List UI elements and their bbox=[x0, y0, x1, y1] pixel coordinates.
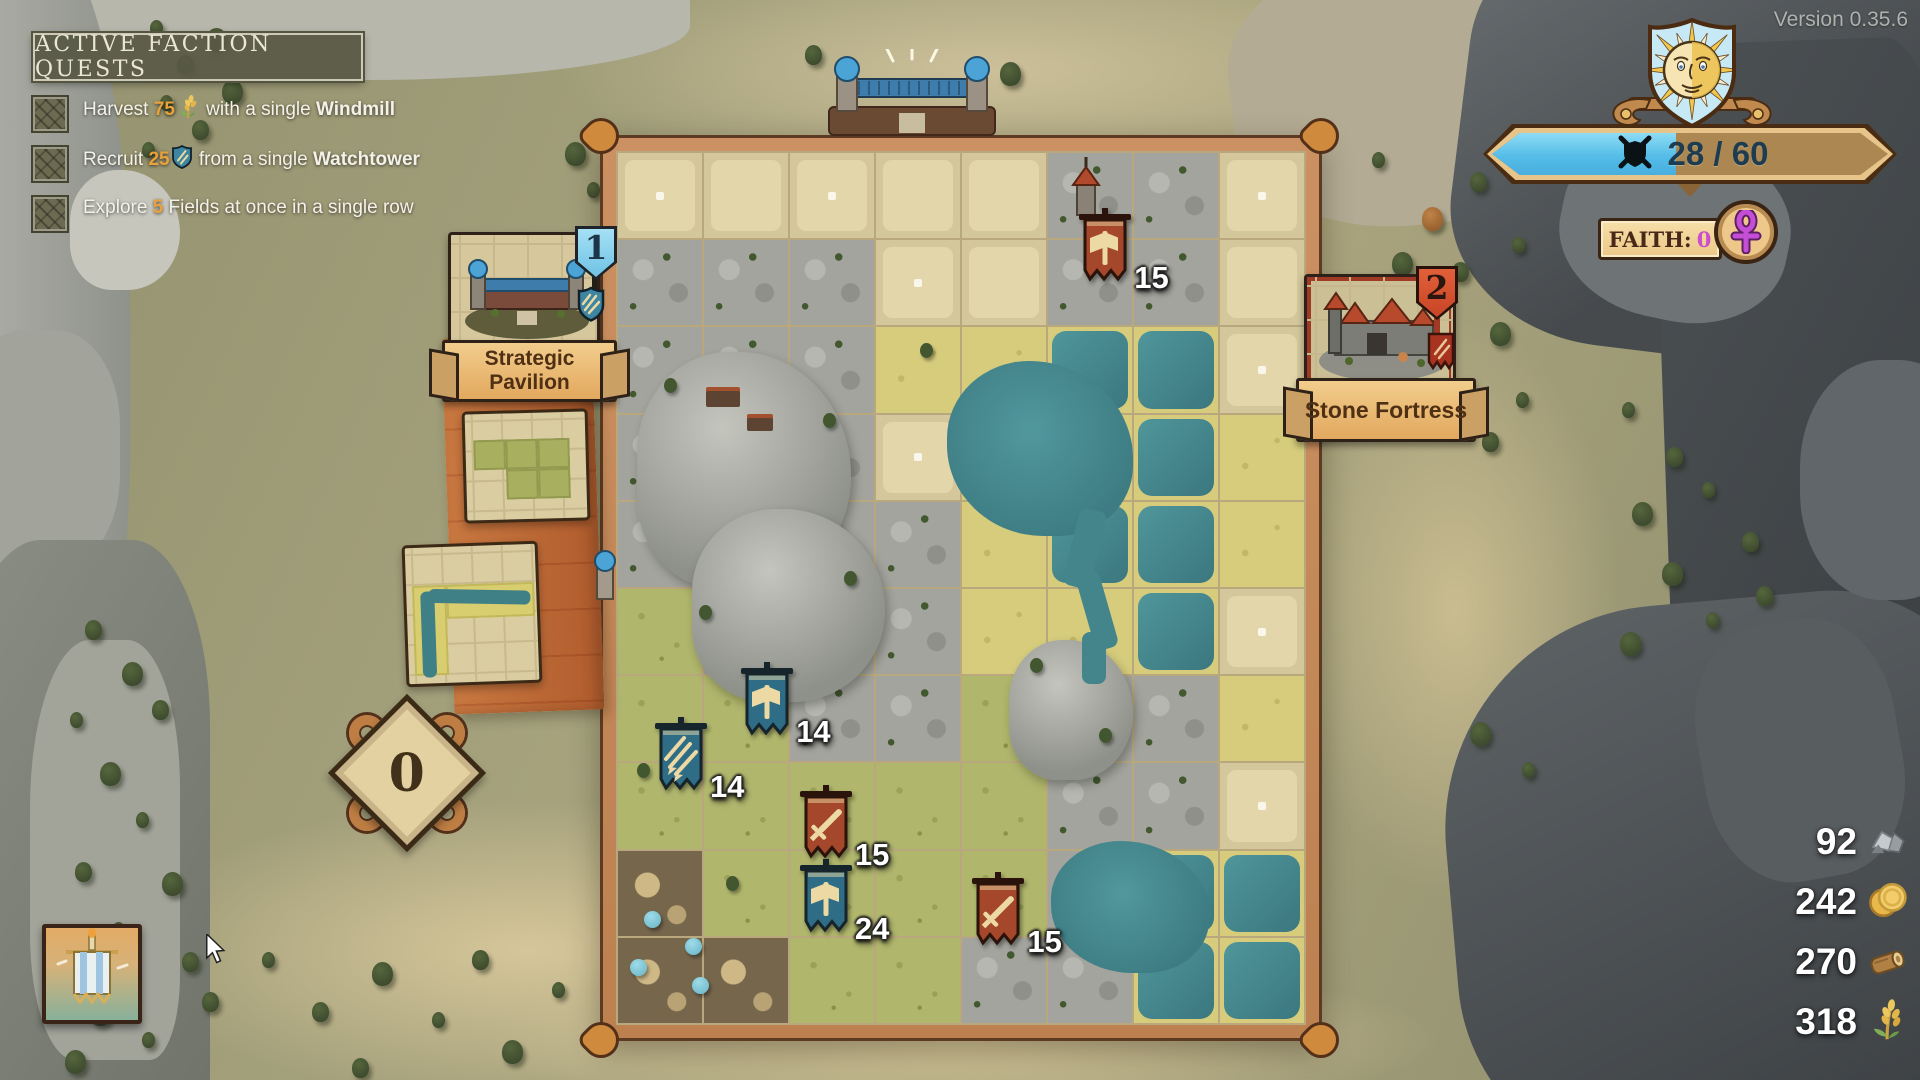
faith-display: FAITH: 0 bbox=[1598, 200, 1788, 268]
tile-piece-preview-grass[interactable] bbox=[462, 408, 591, 523]
tent bbox=[692, 977, 709, 994]
resource-value: 242 bbox=[1795, 881, 1857, 923]
blue-axe-banner[interactable]: 24 bbox=[799, 859, 919, 959]
red-axe-banner[interactable]: 15 bbox=[1078, 208, 1198, 308]
banner-count: 15 bbox=[1027, 924, 1061, 960]
resource-value: 318 bbox=[1795, 1001, 1857, 1043]
quest-panel-title: ACTIVE FACTION QUESTS bbox=[33, 33, 363, 81]
board-tile[interactable] bbox=[1134, 502, 1218, 587]
board-tile[interactable] bbox=[790, 240, 874, 325]
quest-item[interactable]: Harvest 75 with a single Windmill bbox=[33, 95, 453, 131]
fortress-count: 2 bbox=[1426, 268, 1449, 307]
river bbox=[1082, 632, 1106, 684]
board-tile[interactable] bbox=[1220, 763, 1304, 848]
ankh-icon bbox=[1714, 200, 1778, 264]
board-tile[interactable] bbox=[1134, 415, 1218, 500]
board-tile[interactable] bbox=[1220, 589, 1304, 674]
board-tile[interactable] bbox=[962, 240, 1046, 325]
board-tile[interactable] bbox=[1220, 938, 1304, 1023]
resource-panel: 92242270318 bbox=[1540, 812, 1908, 1052]
resource-wheat: 318 bbox=[1540, 992, 1908, 1052]
board-tile[interactable] bbox=[962, 153, 1046, 238]
pavilion-card-name: Strategic Pavilion bbox=[442, 340, 617, 402]
board-tile[interactable] bbox=[1220, 676, 1304, 761]
board-tile[interactable] bbox=[1220, 153, 1304, 238]
stone-fortress-card[interactable]: 2 Stone Fortress bbox=[1296, 266, 1478, 452]
board-tile[interactable] bbox=[962, 763, 1046, 848]
banner-count: 14 bbox=[710, 769, 744, 805]
resource-value: 270 bbox=[1795, 941, 1857, 983]
faction-emblem-button[interactable] bbox=[42, 924, 142, 1024]
quest-panel: ACTIVE FACTION QUESTS Harvest 75 with a … bbox=[33, 33, 453, 231]
board-tile[interactable] bbox=[704, 240, 788, 325]
board-tile[interactable] bbox=[1220, 851, 1304, 936]
tile-queue-counter: 0 bbox=[327, 693, 487, 853]
faith-label: FAITH: bbox=[1609, 227, 1692, 252]
board-tile[interactable] bbox=[1134, 589, 1218, 674]
wheat-icon bbox=[177, 95, 199, 127]
quest-checkbox bbox=[33, 147, 67, 181]
board-tile[interactable] bbox=[876, 327, 960, 412]
tile-piece-preview-river[interactable] bbox=[402, 541, 543, 688]
cliff-rocks bbox=[0, 330, 120, 570]
quest-item[interactable]: Recruit 25 from a single Watchtower bbox=[33, 145, 453, 181]
board-tile[interactable] bbox=[618, 240, 702, 325]
tent bbox=[685, 938, 702, 955]
gold-icon bbox=[1866, 879, 1908, 926]
banner-count: 15 bbox=[1134, 260, 1168, 296]
red-banner-icon bbox=[1426, 332, 1456, 377]
resource-stone: 92 bbox=[1540, 812, 1908, 872]
quest-checkbox bbox=[33, 97, 67, 131]
banner-count: 14 bbox=[796, 714, 830, 750]
board-tile[interactable] bbox=[790, 153, 874, 238]
tent bbox=[644, 911, 661, 928]
board-tile[interactable] bbox=[876, 153, 960, 238]
quest-checkbox bbox=[33, 197, 67, 231]
red-sword-banner[interactable]: 15 bbox=[971, 872, 1091, 972]
board-tile[interactable] bbox=[1134, 763, 1218, 848]
board-tile[interactable] bbox=[704, 938, 788, 1023]
board-tile[interactable] bbox=[704, 153, 788, 238]
village-hut bbox=[706, 391, 740, 407]
wood-icon bbox=[1866, 939, 1908, 986]
tile-queue-count: 0 bbox=[389, 743, 425, 804]
board-tile[interactable] bbox=[876, 676, 960, 761]
banner-count: 24 bbox=[855, 911, 889, 947]
resource-value: 92 bbox=[1816, 821, 1857, 863]
board-tile[interactable] bbox=[1220, 502, 1304, 587]
blue-arrows-banner[interactable]: 14 bbox=[654, 717, 774, 817]
pavilion-count: 1 bbox=[585, 228, 608, 267]
wheat-icon bbox=[1866, 999, 1908, 1046]
board-tile[interactable] bbox=[1134, 676, 1218, 761]
board-tile[interactable] bbox=[618, 153, 702, 238]
faith-value: 0 bbox=[1697, 227, 1712, 252]
resource-wood: 270 bbox=[1540, 932, 1908, 992]
quest-item[interactable]: Explore 5 Fields at once in a single row bbox=[33, 195, 453, 231]
board-tile[interactable] bbox=[876, 240, 960, 325]
board-tile[interactable] bbox=[618, 589, 702, 674]
quest-text: Recruit 25 from a single Watchtower bbox=[83, 145, 420, 177]
board-tile[interactable] bbox=[1134, 327, 1218, 412]
board-tile[interactable] bbox=[1220, 240, 1304, 325]
blue-dome-tower[interactable] bbox=[592, 549, 618, 601]
village-hut bbox=[747, 418, 773, 431]
stone-icon bbox=[1866, 819, 1908, 866]
board-tile[interactable] bbox=[704, 851, 788, 936]
blue-banner-icon bbox=[577, 286, 605, 327]
board-tile[interactable] bbox=[876, 502, 960, 587]
strategic-pavilion-card[interactable]: 1 Strategic Pavilion bbox=[442, 226, 618, 406]
mouse-cursor bbox=[202, 934, 228, 969]
quest-text: Explore 5 Fields at once in a single row bbox=[83, 195, 414, 221]
pavilion-building[interactable] bbox=[823, 49, 1001, 141]
game-board: 151414152415 bbox=[600, 135, 1322, 1041]
board-tile[interactable] bbox=[876, 589, 960, 674]
quest-list: Harvest 75 with a single WindmillRecruit… bbox=[33, 95, 453, 231]
quest-text: Harvest 75 with a single Windmill bbox=[83, 95, 395, 127]
resource-gold: 242 bbox=[1540, 872, 1908, 932]
fortress-card-name: Stone Fortress bbox=[1296, 378, 1476, 442]
sun-faction-emblem bbox=[1582, 14, 1802, 146]
recruit-shield-icon bbox=[172, 145, 192, 177]
